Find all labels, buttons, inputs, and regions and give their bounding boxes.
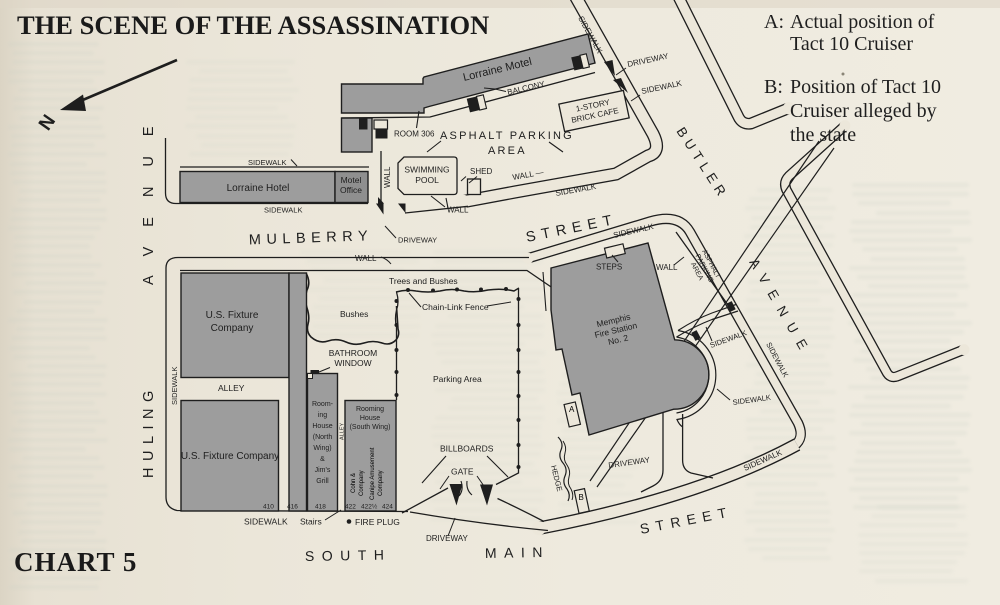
svg-text:ROOM 306: ROOM 306 (394, 130, 435, 139)
svg-text:SOUTH: SOUTH (305, 546, 392, 564)
svg-text:&: & (320, 456, 325, 463)
svg-text:Jim's: Jim's (315, 467, 331, 474)
svg-text:(North: (North (313, 434, 333, 441)
svg-text:HULING: HULING (141, 384, 157, 478)
svg-text:A:: A: (764, 11, 784, 33)
svg-text:422: 422 (345, 504, 356, 511)
svg-text:(South Wing): (South Wing) (350, 424, 391, 431)
svg-text:MAIN: MAIN (485, 544, 550, 561)
svg-text:Chain-Link Fence: Chain-Link Fence (422, 302, 489, 312)
svg-text:ASPHALT PARKING: ASPHALT PARKING (440, 130, 574, 142)
svg-text:WALL: WALL (355, 254, 377, 263)
svg-text:the state: the state (790, 124, 856, 146)
svg-text:Position of Tact 10: Position of Tact 10 (790, 76, 941, 98)
svg-text:Room-: Room- (312, 401, 334, 408)
svg-text:Bushes: Bushes (340, 309, 368, 319)
svg-text:Cruiser alleged by: Cruiser alleged by (790, 100, 937, 122)
svg-text:B:: B: (764, 76, 783, 98)
svg-text:SIDEWALK: SIDEWALK (248, 158, 286, 167)
svg-text:STEPS: STEPS (596, 263, 622, 272)
svg-text:Wing): Wing) (313, 445, 331, 452)
svg-text:ALLEY: ALLEY (340, 423, 346, 440)
svg-text:Tact 10 Cruiser: Tact 10 Cruiser (790, 33, 913, 55)
svg-text:Company: Company (378, 470, 384, 496)
svg-text:Rooming: Rooming (356, 406, 384, 413)
svg-text:Company: Company (211, 323, 254, 334)
svg-text:B: B (579, 493, 584, 502)
svg-text:DRIVEWAY: DRIVEWAY (398, 236, 437, 245)
svg-text:U.S. Fixture: U.S. Fixture (206, 310, 259, 321)
svg-text:410: 410 (263, 504, 274, 511)
svg-text:WALL: WALL (447, 206, 469, 215)
svg-text:BATHROOM: BATHROOM (329, 348, 377, 358)
svg-text:SIDEWALK: SIDEWALK (244, 517, 288, 527)
svg-text:SWIMMING: SWIMMING (404, 165, 449, 175)
svg-text:ing: ing (318, 412, 327, 419)
svg-text:U.S. Fixture Company: U.S. Fixture Company (181, 451, 279, 462)
svg-text:WALL: WALL (383, 166, 392, 188)
svg-text:A: A (569, 405, 575, 414)
svg-text:ALLEY: ALLEY (218, 383, 245, 393)
svg-text:CHART 5: CHART 5 (14, 547, 137, 577)
svg-text:AVENUE: AVENUE (141, 106, 157, 285)
svg-text:416: 416 (287, 504, 298, 511)
svg-text:GATE: GATE (451, 467, 474, 477)
svg-text:FIRE PLUG: FIRE PLUG (355, 517, 400, 527)
svg-text:Office: Office (340, 185, 362, 195)
svg-text:Parking Area: Parking Area (433, 374, 482, 384)
svg-text:BILLBOARDS: BILLBOARDS (440, 444, 494, 454)
svg-text:POOL: POOL (415, 175, 439, 185)
svg-text:THE SCENE OF THE ASSASSINATION: THE SCENE OF THE ASSASSINATION (17, 10, 489, 40)
svg-text:AREA: AREA (488, 145, 527, 157)
svg-text:Grill: Grill (316, 478, 329, 485)
svg-text:Motel: Motel (341, 175, 362, 185)
svg-text:Stairs: Stairs (300, 517, 322, 527)
svg-text:422½: 422½ (361, 503, 378, 511)
svg-text:WINDOW: WINDOW (334, 358, 371, 368)
svg-text:House: House (360, 415, 380, 422)
svg-text:DRIVEWAY: DRIVEWAY (426, 534, 468, 543)
svg-text:SIDEWALK: SIDEWALK (264, 206, 302, 215)
svg-text:Cohn &: Cohn & (351, 473, 357, 493)
svg-text:House: House (312, 423, 332, 430)
svg-text:Lorraine Hotel: Lorraine Hotel (227, 183, 290, 194)
svg-text:Company: Company (359, 470, 365, 496)
svg-text:Trees and Bushes: Trees and Bushes (389, 276, 458, 286)
svg-text:SIDEWALK: SIDEWALK (170, 367, 179, 405)
svg-text:SHED: SHED (470, 167, 492, 176)
svg-text:424: 424 (382, 504, 393, 511)
svg-text:Canipe Amusement: Canipe Amusement (370, 447, 376, 500)
svg-text:Actual position of: Actual position of (790, 11, 935, 33)
svg-text:418: 418 (315, 504, 326, 511)
